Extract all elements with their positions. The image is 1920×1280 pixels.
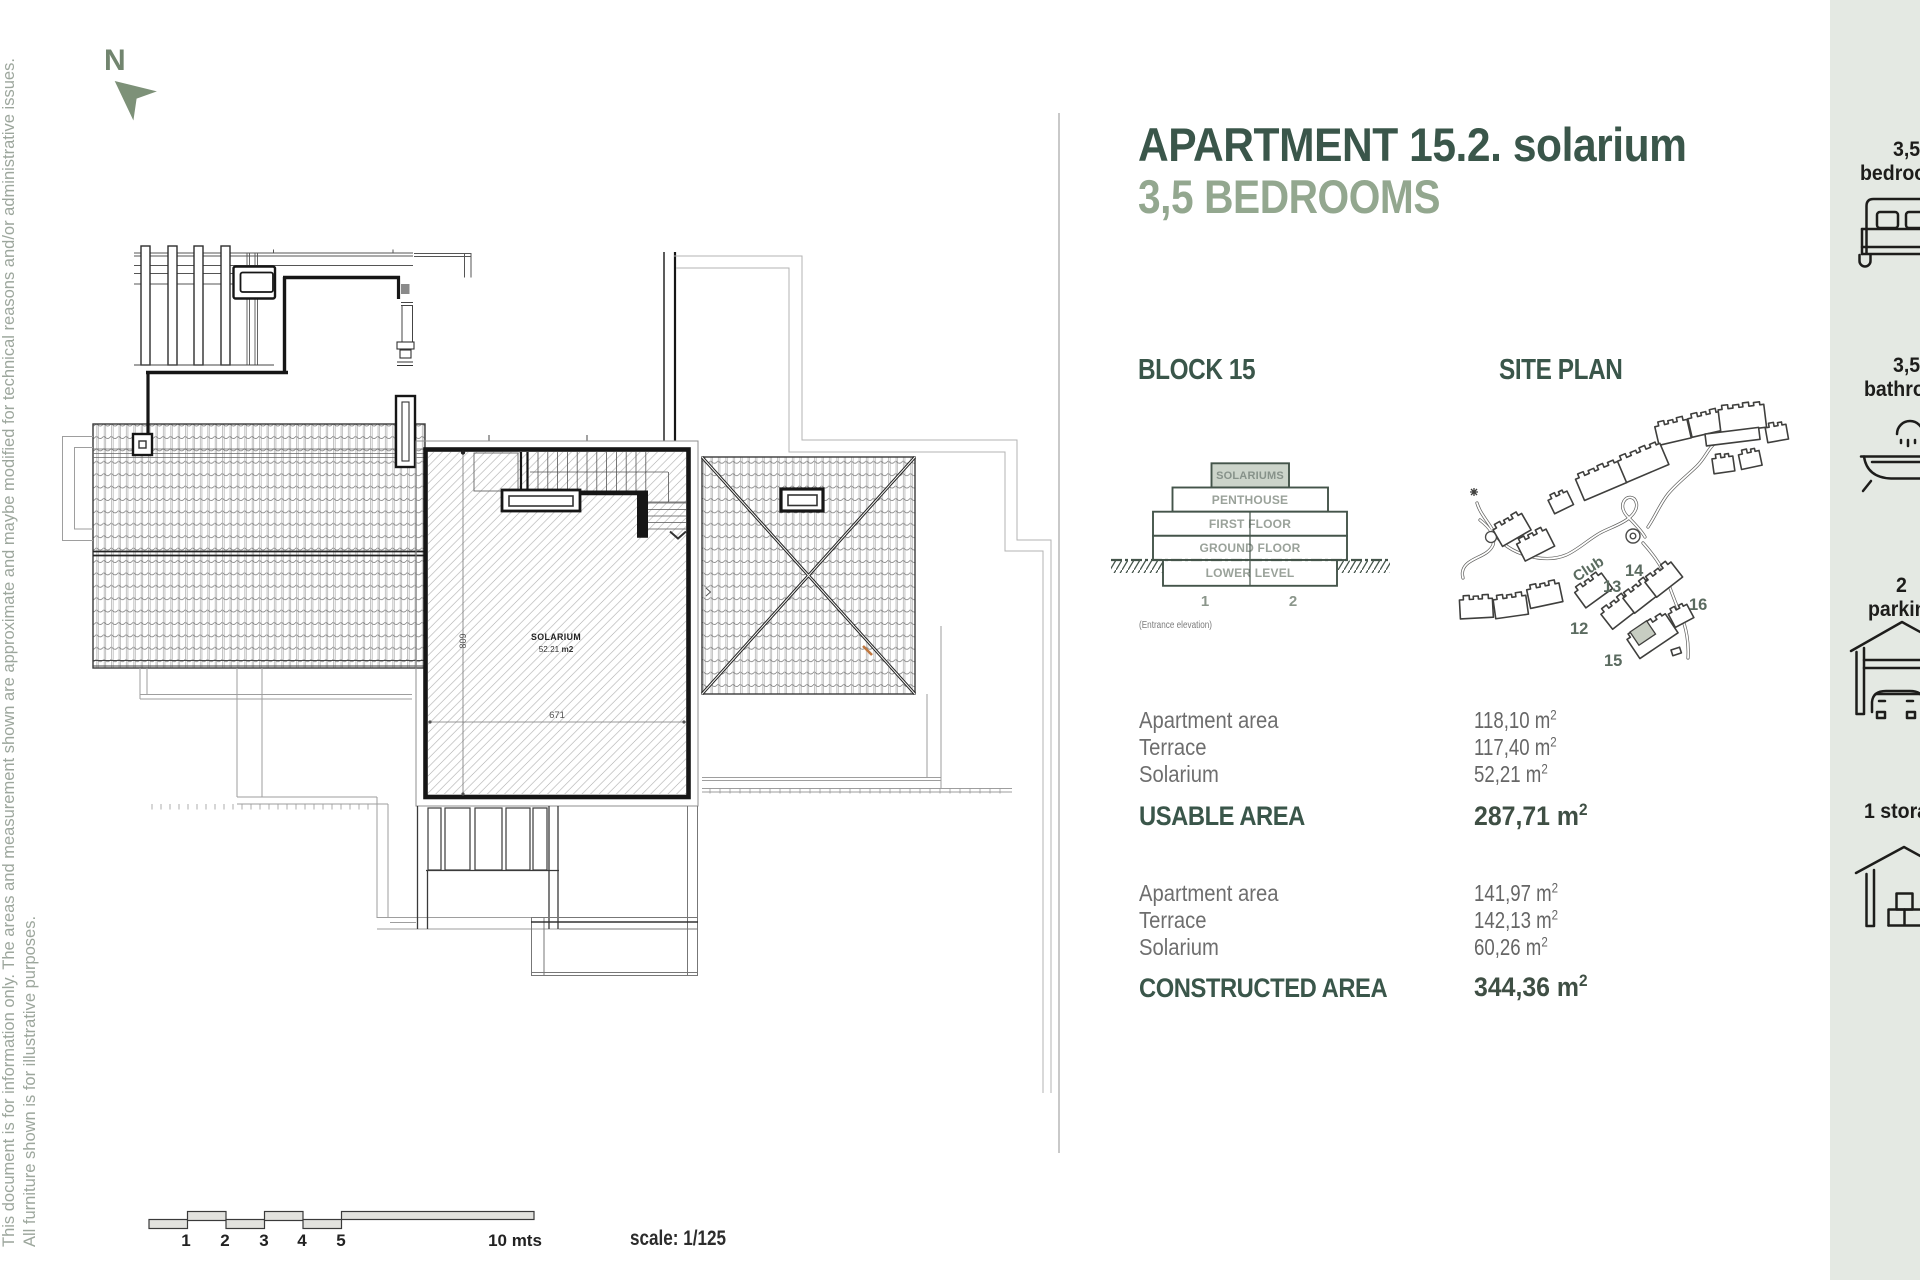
svg-text:1: 1 xyxy=(1201,593,1209,610)
svg-text:14: 14 xyxy=(1625,562,1644,580)
svg-text:4: 4 xyxy=(297,1231,307,1250)
svg-text:52.21 m2: 52.21 m2 xyxy=(539,645,574,654)
svg-text:N: N xyxy=(104,44,126,77)
svg-text:2: 2 xyxy=(220,1231,229,1250)
svg-text:3: 3 xyxy=(259,1231,268,1250)
svg-text:SOLARIUMS: SOLARIUMS xyxy=(1216,470,1284,482)
svg-text:1: 1 xyxy=(181,1231,190,1250)
svg-text:13: 13 xyxy=(1603,578,1621,596)
svg-text:SOLARIUM: SOLARIUM xyxy=(531,632,581,642)
svg-text:10 mts: 10 mts xyxy=(488,1231,542,1250)
svg-text:5: 5 xyxy=(336,1231,345,1250)
svg-text:PENTHOUSE: PENTHOUSE xyxy=(1212,493,1288,507)
svg-text:(Entrance elevation): (Entrance elevation) xyxy=(1139,620,1212,631)
svg-text:scale: 1/125: scale: 1/125 xyxy=(630,1227,726,1250)
svg-text:16: 16 xyxy=(1689,596,1707,614)
svg-text:12: 12 xyxy=(1570,620,1588,638)
svg-text:15: 15 xyxy=(1604,652,1622,670)
svg-text:2: 2 xyxy=(1289,593,1297,610)
svg-text:809: 809 xyxy=(458,633,468,648)
svg-text:671: 671 xyxy=(549,710,565,721)
